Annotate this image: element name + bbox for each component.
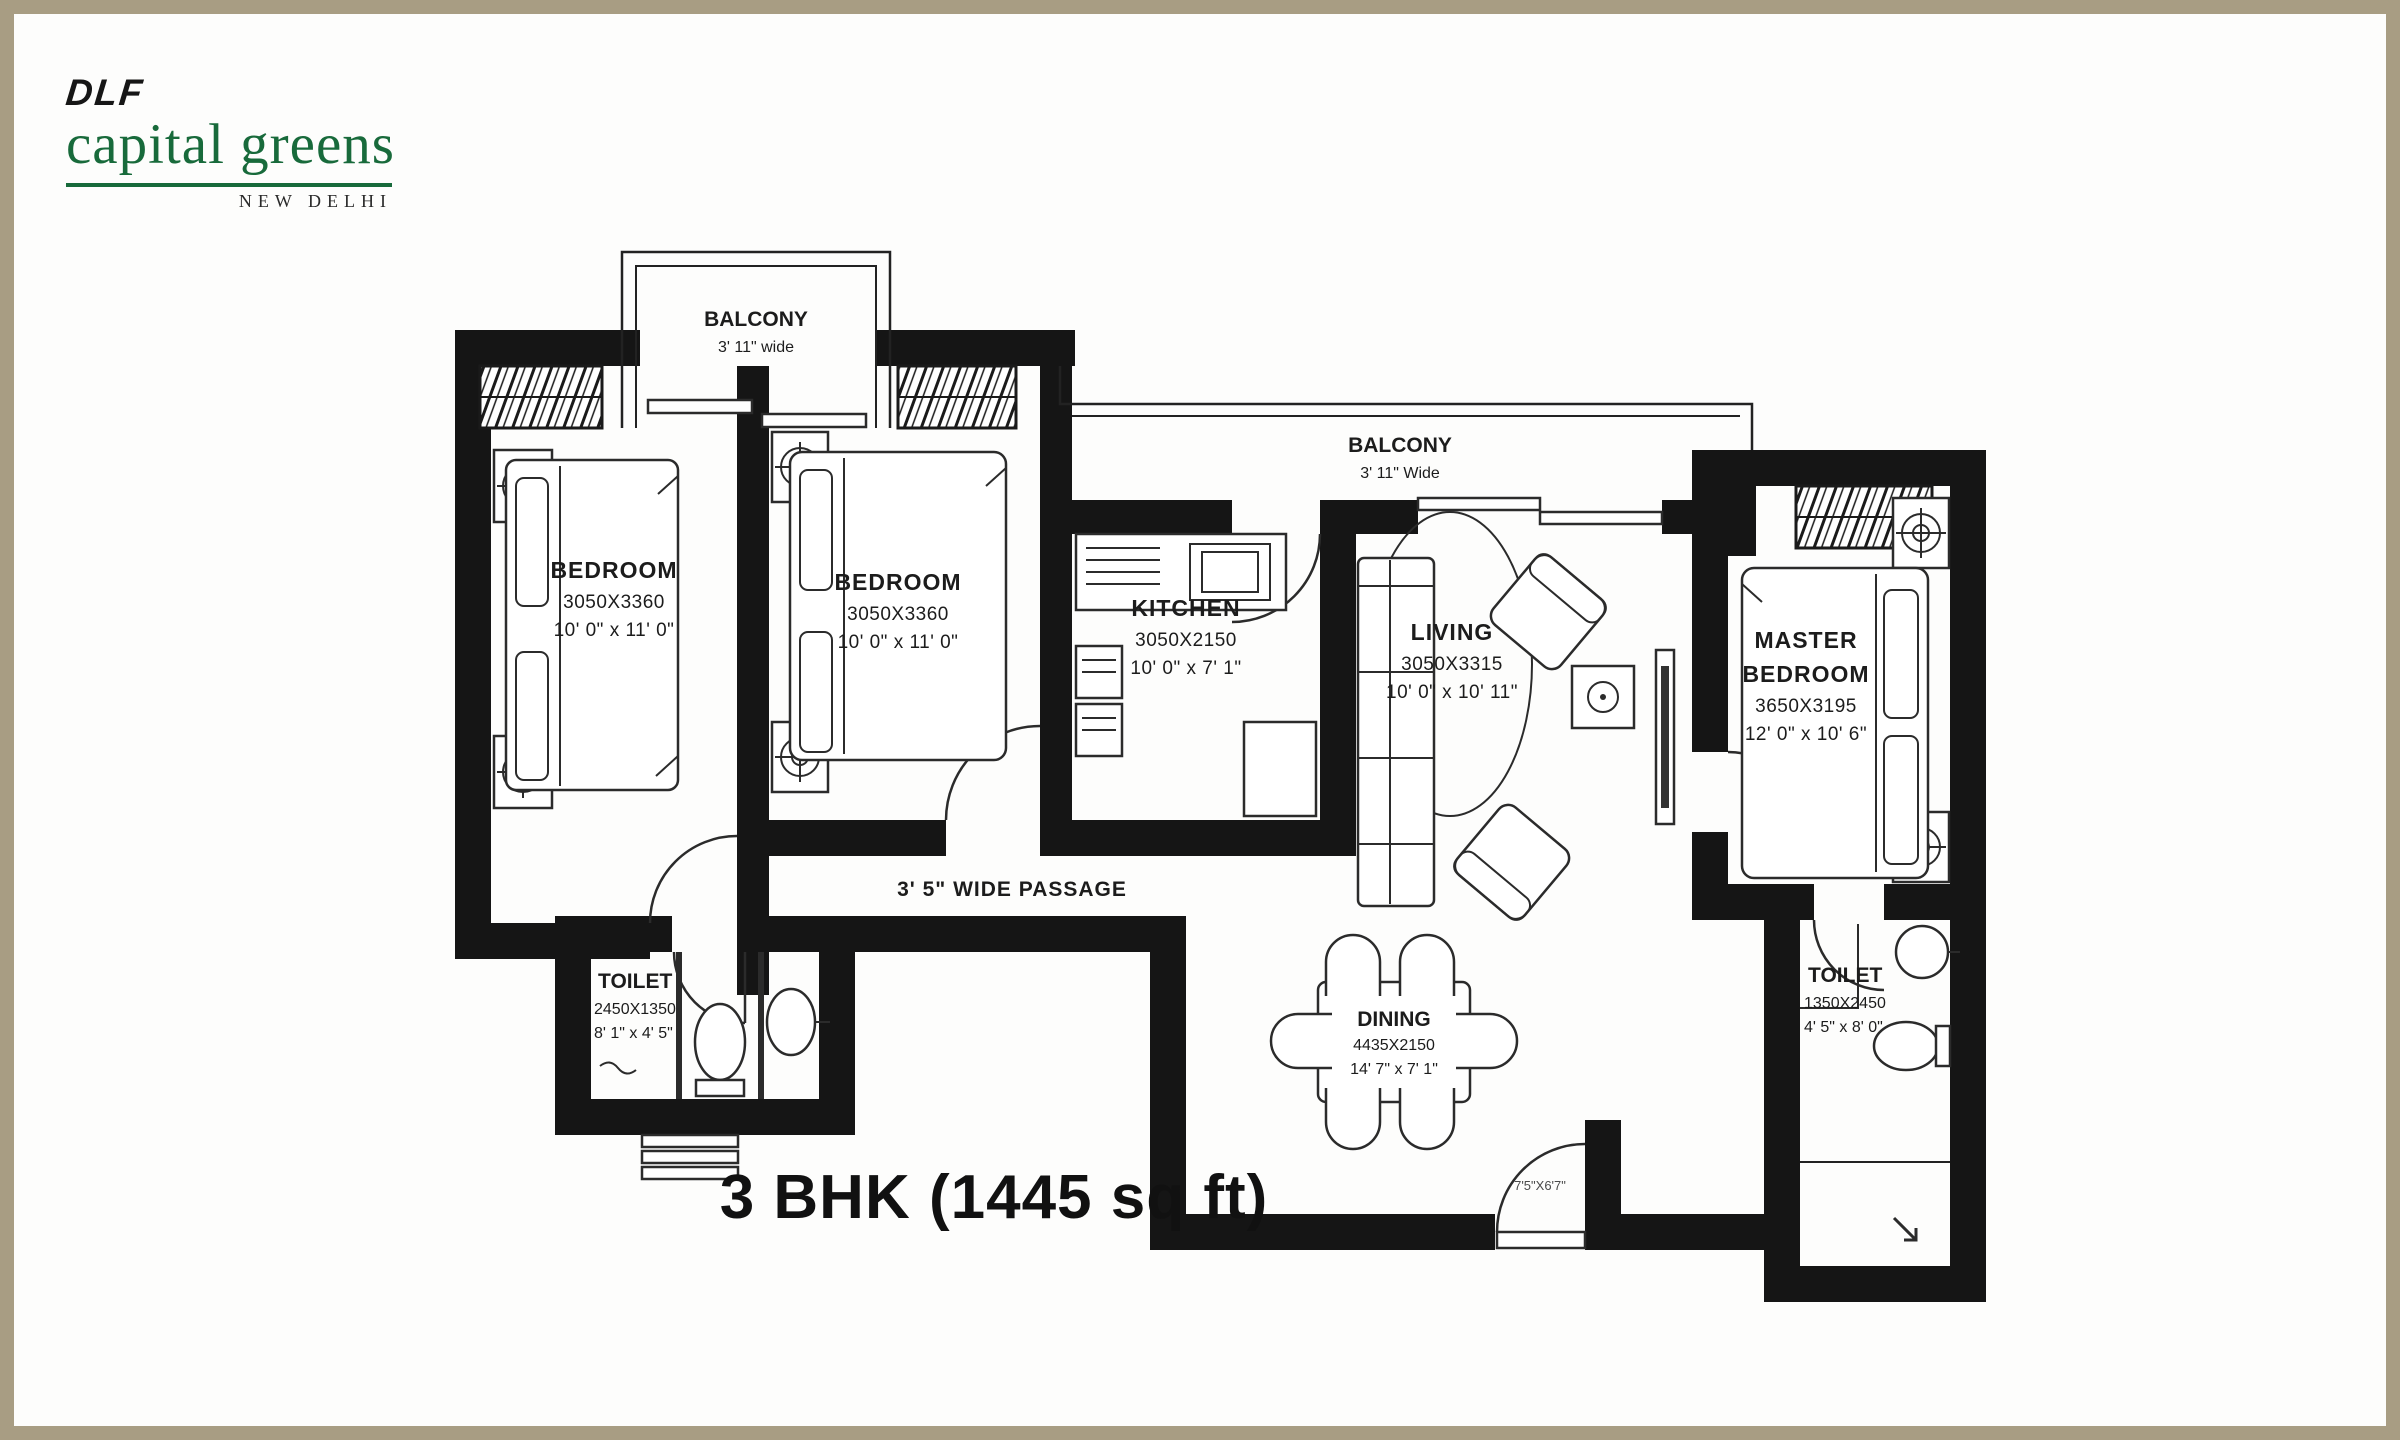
master-name-2: BEDROOM: [1742, 661, 1869, 687]
window-hatch-bedroom2: [898, 366, 1016, 428]
master-ft: 12' 0" x 10' 6": [1745, 724, 1867, 745]
toilet-right-name: TOILET: [1808, 964, 1882, 987]
bedroom1-ft: 10' 0" x 11' 0": [554, 620, 675, 641]
toilet-left-drain: [600, 1062, 636, 1073]
toilet-left-name: TOILET: [598, 970, 672, 993]
dining-mm: 4435X2150: [1353, 1037, 1435, 1054]
toilet-right-mm: 1350X2450: [1804, 995, 1886, 1012]
toilet-left-mm: 2450X1350: [594, 1001, 676, 1018]
bedroom1-mm: 3050X3360: [563, 592, 665, 613]
living-chair-1: [1486, 550, 1610, 674]
dining-ft: 14' 7" x 7' 1": [1350, 1061, 1438, 1078]
living-ft: 10' 0" x 10' 11": [1386, 682, 1518, 703]
toilet-left-wc: [695, 1004, 745, 1080]
passage-label: 3' 5" WIDE PASSAGE: [897, 878, 1127, 901]
master-mm: 3650X3195: [1755, 696, 1857, 717]
bedroom1-name: BEDROOM: [550, 557, 677, 583]
toilet-left-ft: 8' 1" x 4' 5": [594, 1025, 673, 1042]
plan-sheet: DLF capital greens NEW DELHI: [14, 14, 2386, 1426]
kitchen-fridge: [1244, 722, 1316, 816]
balcony-top-width: 3' 11" wide: [718, 339, 794, 356]
living-furniture: [1358, 512, 1674, 924]
toilet-right-basin: [1896, 926, 1948, 978]
balcony-mid-width: 3' 11" Wide: [1360, 465, 1440, 482]
kitchen-name: KITCHEN: [1131, 595, 1240, 621]
living-mm: 3050X3315: [1401, 654, 1503, 675]
bedroom2-name: BEDROOM: [834, 569, 961, 595]
living-chair-2: [1450, 800, 1574, 924]
plan-title: 3 BHK (1445 sq ft): [14, 1162, 1974, 1233]
bedroom1-door-arc: [650, 836, 737, 923]
kitchen-ft: 10' 0" x 7' 1": [1130, 658, 1241, 679]
balcony-top-label: BALCONY: [704, 308, 808, 331]
floorplan-page: { "brand": { "dlf": "DLF", "name": "capi…: [0, 0, 2400, 1440]
toilet-right-wc: [1874, 1022, 1938, 1070]
balcony-mid-label: BALCONY: [1348, 434, 1452, 457]
kitchen-mm: 3050X2150: [1135, 630, 1237, 651]
entry-door-sill: [1497, 1232, 1585, 1248]
master-name-1: MASTER: [1754, 627, 1857, 653]
window-hatch-bedroom1: [480, 366, 602, 428]
bedroom2-ft: 10' 0" x 11' 0": [838, 632, 959, 653]
toilet-left-basin: [767, 989, 815, 1055]
master-bed: [1742, 498, 1949, 882]
dining-name: DINING: [1357, 1008, 1431, 1031]
bedroom2-mm: 3050X3360: [847, 604, 949, 625]
living-name: LIVING: [1411, 619, 1494, 645]
living-sofa: [1358, 558, 1434, 906]
living-tv-panel: [1661, 666, 1669, 808]
toilet-right-ft: 4' 5" x 8' 0": [1804, 1019, 1883, 1036]
